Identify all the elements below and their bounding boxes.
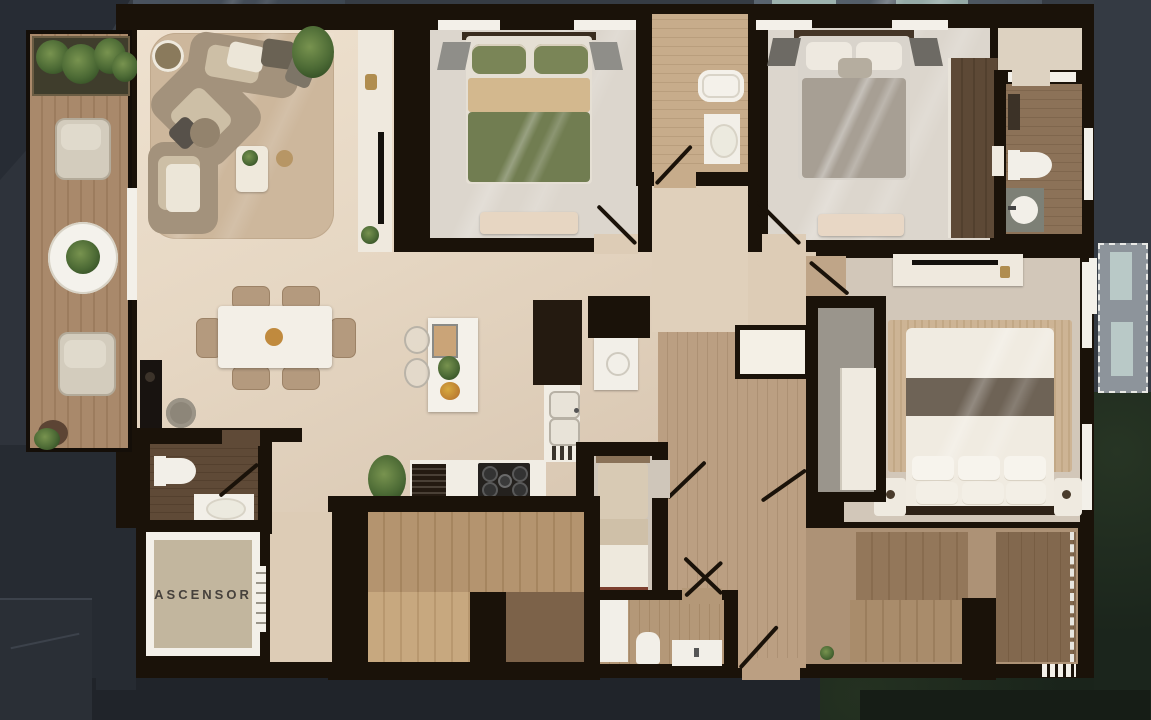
powder-door-threshold — [222, 430, 260, 446]
kitchen-vent-slits — [552, 446, 574, 460]
toilet2-tank — [1008, 150, 1020, 180]
bed2-duvet — [802, 78, 906, 178]
master-tv — [912, 260, 998, 265]
service-vanity-faucet — [694, 648, 699, 657]
powder-toilet-bowl — [166, 458, 196, 484]
terrace-stairs-upper — [856, 532, 968, 600]
bar-stool-1 — [404, 326, 430, 354]
terrace-dashed-edge — [1070, 532, 1074, 662]
bathroom2-cabinet — [1008, 94, 1020, 130]
building-sketch — [0, 598, 92, 720]
tv-screen — [378, 132, 384, 224]
bathroom1-sink — [710, 124, 738, 158]
living-deck-glass-door — [127, 188, 137, 300]
master-bed-band — [906, 378, 1054, 416]
master-window-2 — [1082, 424, 1092, 510]
sofa-ottoman — [190, 118, 220, 148]
bathroom2-sink — [1010, 196, 1038, 224]
bed1-pillow-2 — [534, 44, 588, 74]
island-cutting-board — [432, 324, 458, 358]
island-greens — [438, 356, 460, 380]
round-basket — [152, 40, 184, 72]
master-headboard — [902, 506, 1058, 515]
kitchen-tall-cabinet — [533, 300, 582, 385]
washing-machine-door — [606, 352, 630, 376]
ac-unit-1 — [1110, 252, 1132, 300]
stair-upper-flight — [368, 512, 584, 592]
bed2-nightstand-right — [909, 38, 943, 66]
bed1-pillow-1 — [472, 44, 526, 74]
tv-console — [358, 30, 392, 252]
bedroom2-window-1 — [756, 20, 812, 30]
master-lamp-left — [886, 490, 895, 499]
outside-left-of-elevator — [96, 528, 136, 690]
island-fruit — [440, 382, 460, 400]
trees-right-dark — [860, 690, 1150, 720]
entry-console — [140, 360, 162, 432]
dining-chair-right — [330, 318, 356, 358]
master-pillow-3 — [1004, 456, 1046, 480]
floor-pot — [166, 398, 196, 428]
bathroom2-window-right — [1084, 128, 1093, 200]
bed2-bench — [818, 214, 904, 236]
living-corner-plant — [292, 26, 334, 78]
planter-greenery-4 — [112, 52, 138, 82]
hall-closet — [735, 325, 810, 379]
powder-basin — [206, 498, 246, 520]
kitchen-sink-faucet — [574, 408, 579, 413]
floorplan-render: ASCENSOR — [0, 0, 1151, 720]
terrace-door-threshold — [742, 658, 800, 680]
entry-wall-band — [270, 428, 302, 442]
service-bed-pillow — [598, 463, 648, 519]
bedroom1-window-1 — [438, 20, 500, 30]
corridor-bedrooms-floor — [652, 185, 748, 332]
tv-console-plant — [361, 226, 379, 244]
sofa-throw-white-2 — [166, 164, 200, 212]
ensuite-door-leaf — [992, 146, 1004, 176]
side-table-gold — [276, 150, 293, 167]
service-bed-sheet — [598, 545, 648, 587]
kitchen-sink-1 — [549, 391, 580, 419]
dining-chair-bottom-1 — [232, 366, 270, 390]
stair-landing — [506, 592, 584, 662]
balcony-table-plant — [66, 240, 100, 274]
powder-toilet-tank — [154, 456, 166, 486]
bathtub — [698, 70, 744, 102]
master-console-deco — [1000, 266, 1010, 278]
bed2-nightstand-left — [767, 38, 801, 66]
balcony-pot-plant — [34, 428, 60, 450]
cooktop-burner-1 — [482, 466, 498, 482]
stair-lower-flight — [368, 592, 470, 662]
master-pillow-1 — [912, 456, 954, 480]
master-pillow-4 — [916, 482, 958, 504]
tv-console-deco-gold — [365, 74, 377, 90]
entry-console-deco — [145, 372, 155, 382]
master-pillow-6 — [1006, 482, 1046, 504]
bed1-duvet — [468, 112, 590, 182]
lounge-chair-2-cushion — [64, 340, 106, 368]
bed2-accent-pillow — [838, 58, 872, 78]
entry-corridor-floor — [268, 512, 332, 662]
lounge-chair-1-cushion — [61, 124, 101, 150]
bar-stool-2 — [404, 358, 430, 388]
bed1-bench — [480, 212, 578, 234]
bed1-nightstand-left — [437, 42, 471, 70]
dining-centerpiece — [265, 328, 283, 346]
master-lamp-right — [1062, 490, 1071, 499]
stair-divider-wall — [470, 592, 506, 680]
cooktop-burner-center — [498, 474, 512, 488]
master-pillow-5 — [962, 482, 1004, 504]
service-bed-band — [598, 519, 648, 545]
laundry-wall-jut — [588, 296, 650, 338]
service-bed-headboard — [596, 456, 650, 463]
terrace-hatch-strip — [1042, 664, 1076, 677]
terrace-landing — [996, 532, 1076, 662]
elevator-door-slit — [256, 566, 266, 632]
elevator-cab: ASCENSOR — [154, 540, 252, 648]
elevator-label: ASCENSOR — [154, 587, 252, 602]
kitchen-mat — [412, 464, 446, 498]
terrace-divider-wall — [962, 598, 996, 680]
bathroom2-faucet — [1008, 206, 1016, 210]
vestibule-floor — [998, 28, 1082, 70]
coffee-table-plant — [242, 150, 258, 166]
service-room-threshold — [650, 460, 670, 498]
bed1-fold-band — [468, 78, 590, 112]
bedroom2-window-2 — [892, 20, 948, 30]
trees-right — [1094, 392, 1151, 692]
terrace-plant — [820, 646, 834, 660]
master-closet-wardrobe — [840, 368, 876, 490]
ac-balcony-door — [1089, 258, 1097, 314]
service-toilet — [636, 632, 660, 664]
terrace-stairs-lower — [850, 600, 962, 662]
vestibule-door-threshold — [1012, 68, 1050, 86]
toilet2-bowl — [1020, 152, 1052, 178]
dining-chair-bottom-2 — [282, 366, 320, 390]
cooktop-burner-2 — [512, 466, 528, 482]
bedroom1-window-2 — [574, 20, 636, 30]
master-pillow-2 — [958, 456, 1000, 480]
ac-unit-2 — [1111, 322, 1133, 376]
bed1-nightstand-right — [589, 42, 623, 70]
